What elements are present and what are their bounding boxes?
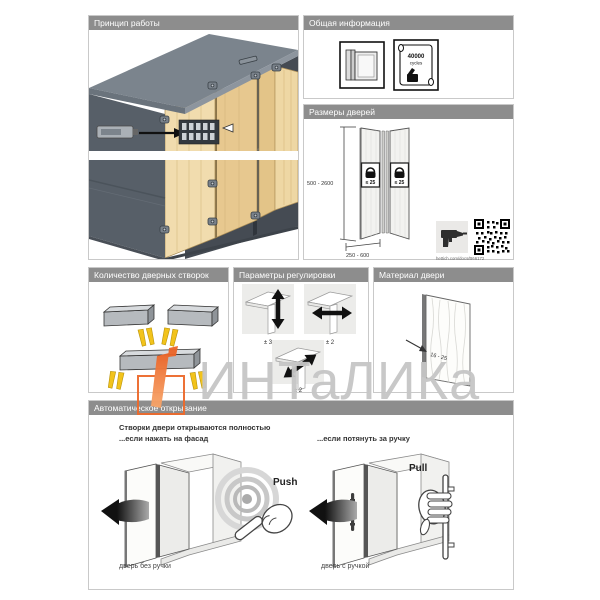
watermark: ИНТаЛИКа	[132, 344, 480, 418]
caption-door-no-handle: дверь без ручки	[119, 563, 171, 570]
drill-icon	[436, 221, 468, 253]
cycles-value: 40000	[408, 54, 425, 60]
door-sizes-illustration: 500 - 2600 ≤	[304, 119, 513, 261]
push-illustration: Push	[209, 455, 321, 557]
panel-leaf-count-title: Количество дверных створок	[89, 268, 228, 282]
panel-door-sizes-title: Размеры дверей	[304, 105, 513, 119]
watermark-text: ИНТаЛИКа	[198, 354, 480, 408]
qr-code	[474, 219, 510, 255]
auto-heading-line2: ...если нажать на фасад	[119, 434, 208, 443]
cycles-certificate-icon: 40000 cycles	[394, 40, 438, 90]
panel-auto-opening: Автоматическое открывание Створки двери …	[88, 400, 514, 590]
weight-right-label: ≤ 25	[395, 180, 405, 186]
weight-badge-right: ≤ 25	[391, 163, 409, 187]
push-label: Push	[273, 477, 297, 488]
intalika-logo-icon	[132, 344, 190, 418]
caption-door-with-handle: дверь с ручкой	[321, 563, 369, 570]
panel-principle: Принцип работы	[88, 15, 299, 260]
panel-general-info: Общая информация 40000 c	[303, 15, 514, 99]
auto-heading-line1: Створки двери открываются полностью	[119, 423, 270, 432]
general-info-icons: 40000 cycles	[304, 30, 513, 98]
cabinet-mechanism-illustration	[89, 30, 298, 259]
weight-badge-left: ≤ 25	[362, 163, 380, 187]
panel-door-sizes: Размеры дверей 500 - 2600	[303, 104, 514, 260]
height-range-label: 500 - 2600	[307, 181, 333, 187]
open-direction-arrow-icon	[309, 499, 357, 525]
width-dimension	[346, 239, 380, 251]
door-leaf-small-right	[168, 305, 218, 326]
panel-principle-title: Принцип работы	[89, 16, 298, 30]
catalog-page: Принцип работы	[0, 0, 600, 600]
drive-unit-icon	[97, 126, 138, 138]
open-direction-arrow-icon	[101, 499, 149, 525]
weight-left-label: ≤ 25	[366, 180, 376, 186]
panel-general-info-title: Общая информация	[304, 16, 513, 30]
height-dimension	[340, 127, 356, 241]
yellow-arrow-icon	[106, 369, 127, 391]
panel-door-material-title: Материал двери	[374, 268, 513, 282]
catalog-icon	[340, 42, 384, 88]
auto-heading-right: ...если потянуть за ручку	[317, 434, 410, 443]
pull-illustration: Pull	[407, 455, 479, 567]
panel-adjustment-title: Параметры регулировки	[234, 268, 368, 282]
width-range-label: 250 - 600	[346, 253, 369, 259]
door-leaf-small-left	[104, 305, 154, 326]
doc-link: hettich.com/docs/B66172	[436, 256, 485, 261]
pull-label: Pull	[409, 463, 428, 474]
cycles-unit: cycles	[410, 61, 423, 66]
